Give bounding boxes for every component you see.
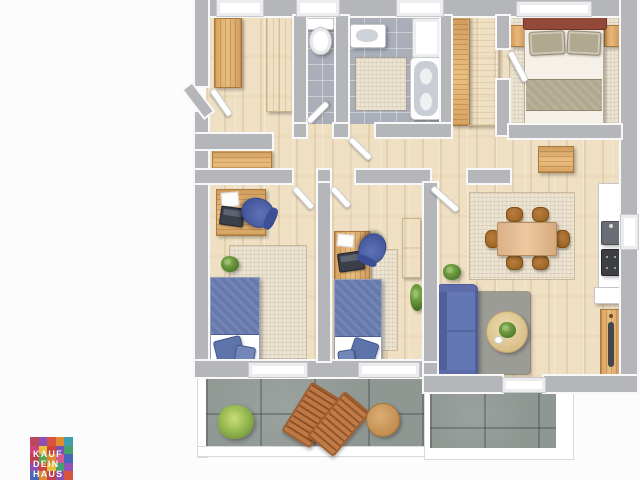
balcony-door-sill: [502, 377, 546, 393]
window-kids-middle: [358, 362, 420, 378]
bath-mat: [356, 58, 406, 110]
terrace-table: [366, 403, 400, 437]
wall-left-upper: [195, 0, 208, 86]
coffee-table: [486, 311, 528, 353]
wall-hall-c: [356, 170, 430, 183]
kaufdeinhaus-logo: KAUF DEIN HAUS: [30, 437, 73, 480]
sink-basin: [356, 29, 378, 42]
bed-headboard: [523, 16, 607, 30]
wall-corridor-c: [376, 124, 451, 137]
plant: [443, 264, 461, 280]
sofa: [436, 284, 478, 378]
balcony-railing: [197, 446, 432, 457]
wall-nook-bedroom-a: [497, 16, 509, 48]
dining-chair: [506, 207, 523, 222]
window-kids-left: [248, 362, 308, 378]
logo-tile: [64, 454, 73, 463]
desk-paper: [336, 233, 354, 248]
logo-line-1: KAUF: [33, 449, 63, 459]
wall-bottom-living-b: [544, 376, 637, 392]
built-in-wardrobe-light: [468, 16, 499, 126]
kitchen-stove: [601, 249, 621, 276]
faucet: [609, 224, 613, 228]
wall-entry-stub: [195, 134, 272, 149]
bathtub: [410, 57, 442, 120]
logo-tile: [39, 437, 48, 446]
dining-chair: [506, 255, 523, 270]
tv-sideboard: [600, 309, 622, 379]
dining-chair: [555, 230, 570, 248]
wall-hall-a: [195, 170, 292, 183]
bathtub-basin: [414, 61, 438, 116]
plant: [221, 256, 239, 272]
coffee-table-plant: [499, 322, 516, 338]
logo-text: KAUF DEIN HAUS: [33, 449, 63, 479]
single-bed: [210, 277, 260, 363]
coffee-table-dish: [494, 336, 503, 344]
kitchen-sink: [601, 221, 621, 245]
sofa-seats: [447, 289, 475, 373]
wall-hall-b: [318, 170, 330, 183]
wall-kids-divider: [318, 183, 330, 361]
single-bed: [334, 279, 382, 363]
wall-kids-living: [424, 183, 437, 361]
dining-chair: [532, 255, 549, 270]
bed-blanket: [526, 79, 602, 111]
wall-corridor-b: [334, 124, 348, 137]
window-kitchen: [620, 214, 639, 250]
wall-bath-nook: [441, 16, 451, 124]
logo-tile: [64, 437, 73, 446]
wall-wc-bath: [336, 16, 348, 124]
window-entry: [216, 0, 264, 17]
wall-bedroom-bottom: [509, 125, 621, 138]
window-wc: [296, 0, 340, 17]
logo-tile: [64, 471, 73, 480]
logo-tile: [47, 437, 56, 446]
entry-wardrobe: [214, 18, 242, 88]
window-bedroom: [516, 1, 592, 17]
dining-chair: [532, 207, 549, 222]
entry-cabinet: [266, 14, 296, 112]
bed-duvet: [211, 278, 259, 335]
wall-hall-d: [468, 170, 510, 183]
bath-sink: [350, 24, 386, 48]
logo-tile: [64, 446, 73, 455]
dining-table: [497, 222, 557, 256]
wall-left-lower: [195, 112, 208, 362]
shower-cabinet: [412, 18, 441, 58]
logo-tile: [30, 437, 39, 446]
tv: [608, 322, 614, 367]
logo-tile: [64, 463, 73, 472]
logo-tile: [56, 437, 65, 446]
bed-pillow: [566, 30, 601, 56]
hall-sideboard: [538, 146, 574, 173]
wall-nook-bedroom-b: [497, 80, 509, 135]
wall-bottom-living-a: [424, 376, 502, 392]
wall-right: [621, 0, 637, 392]
window-bathroom: [396, 0, 444, 17]
kids-wardrobe: [402, 218, 421, 278]
toilet-bowl: [309, 27, 332, 55]
bed-duvet: [335, 280, 381, 337]
logo-line-3: HAUS: [33, 469, 63, 479]
wall-corridor-a: [294, 124, 306, 137]
plant: [410, 284, 424, 311]
floor-plan: [0, 0, 640, 480]
bed-pillow: [528, 30, 565, 56]
double-bed: [524, 16, 604, 130]
wall-entry-wc: [294, 16, 306, 124]
sofa-armrest: [438, 285, 476, 292]
logo-line-2: DEIN: [33, 459, 63, 469]
speaker-dot: [609, 314, 613, 318]
balcony-right-tiles: [430, 391, 556, 448]
